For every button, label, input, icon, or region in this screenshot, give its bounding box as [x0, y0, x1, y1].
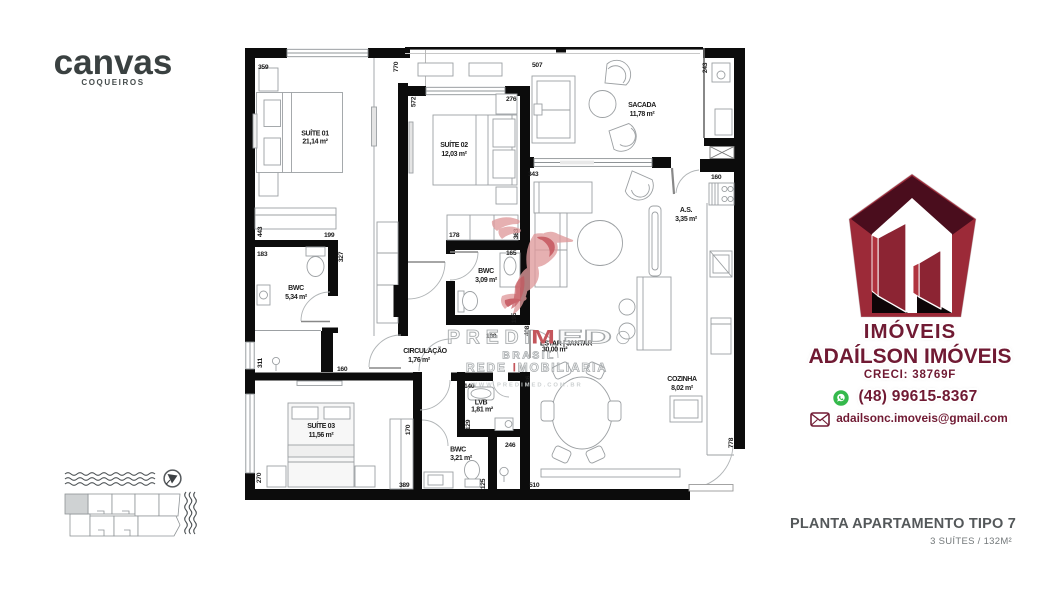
svg-text:CIRCULAÇÃO: CIRCULAÇÃO	[403, 346, 447, 355]
svg-text:160: 160	[337, 366, 348, 373]
svg-text:183: 183	[257, 251, 268, 258]
svg-text:311: 311	[257, 357, 264, 367]
svg-text:359: 359	[258, 64, 269, 71]
svg-text:507: 507	[532, 62, 543, 69]
svg-text:21,14 m²: 21,14 m²	[302, 139, 328, 146]
svg-text:443: 443	[257, 226, 264, 237]
svg-text:PREDI: PREDI	[447, 327, 536, 349]
svg-text:195: 195	[511, 312, 518, 323]
svg-text:COZINHA: COZINHA	[667, 376, 697, 383]
svg-text:178: 178	[449, 232, 460, 239]
svg-text:770: 770	[393, 61, 400, 72]
svg-text:778: 778	[728, 437, 735, 448]
svg-text:389: 389	[399, 482, 410, 489]
svg-text:11,56 m²: 11,56 m²	[309, 432, 335, 439]
svg-text:MOBILIARIA: MOBILIARIA	[518, 361, 608, 375]
svg-text:WWW.PREDIMED.COM.BR: WWW.PREDIMED.COM.BR	[471, 383, 582, 389]
svg-text:1,81 m²: 1,81 m²	[471, 407, 494, 414]
svg-text:5,34 m²: 5,34 m²	[285, 294, 308, 301]
svg-text:11,78 m²: 11,78 m²	[630, 111, 656, 118]
svg-text:276: 276	[506, 96, 517, 103]
svg-text:BRASIL: BRASIL	[502, 350, 555, 362]
svg-text:125: 125	[480, 478, 487, 489]
svg-text:129: 129	[465, 419, 472, 430]
svg-text:3,09 m²: 3,09 m²	[475, 277, 498, 284]
svg-text:BWC: BWC	[288, 285, 304, 292]
svg-text:510: 510	[529, 482, 540, 489]
svg-text:3,35 m²: 3,35 m²	[675, 216, 698, 223]
svg-text:I: I	[513, 361, 516, 375]
svg-text:246: 246	[505, 442, 516, 449]
svg-text:LVB: LVB	[475, 400, 488, 407]
svg-text:3,21 m²: 3,21 m²	[450, 455, 473, 462]
svg-text:BWC: BWC	[478, 268, 494, 275]
svg-text:ED: ED	[557, 327, 612, 349]
svg-text:M: M	[531, 327, 555, 349]
svg-text:170: 170	[405, 424, 412, 435]
svg-text:BWC: BWC	[450, 447, 466, 454]
svg-text:572: 572	[410, 96, 417, 107]
svg-text:327: 327	[338, 251, 345, 262]
svg-text:REDE: REDE	[466, 361, 507, 375]
svg-text:12,03 m²: 12,03 m²	[441, 151, 467, 158]
svg-text:SUÍTE 03: SUÍTE 03	[307, 421, 335, 430]
svg-text:1,76 m²: 1,76 m²	[408, 357, 431, 364]
svg-text:A.S.: A.S.	[680, 207, 693, 214]
svg-text:SUÍTE 01: SUÍTE 01	[301, 129, 329, 138]
svg-text:160: 160	[711, 174, 722, 181]
svg-text:343: 343	[528, 171, 539, 178]
svg-text:270: 270	[256, 472, 263, 483]
svg-text:SACADA: SACADA	[628, 102, 656, 109]
svg-text:SUÍTE 02: SUÍTE 02	[440, 140, 468, 149]
svg-text:199: 199	[324, 232, 335, 239]
svg-text:8,02 m²: 8,02 m²	[671, 385, 694, 392]
svg-text:243: 243	[702, 62, 709, 73]
svg-text:165: 165	[506, 250, 517, 257]
